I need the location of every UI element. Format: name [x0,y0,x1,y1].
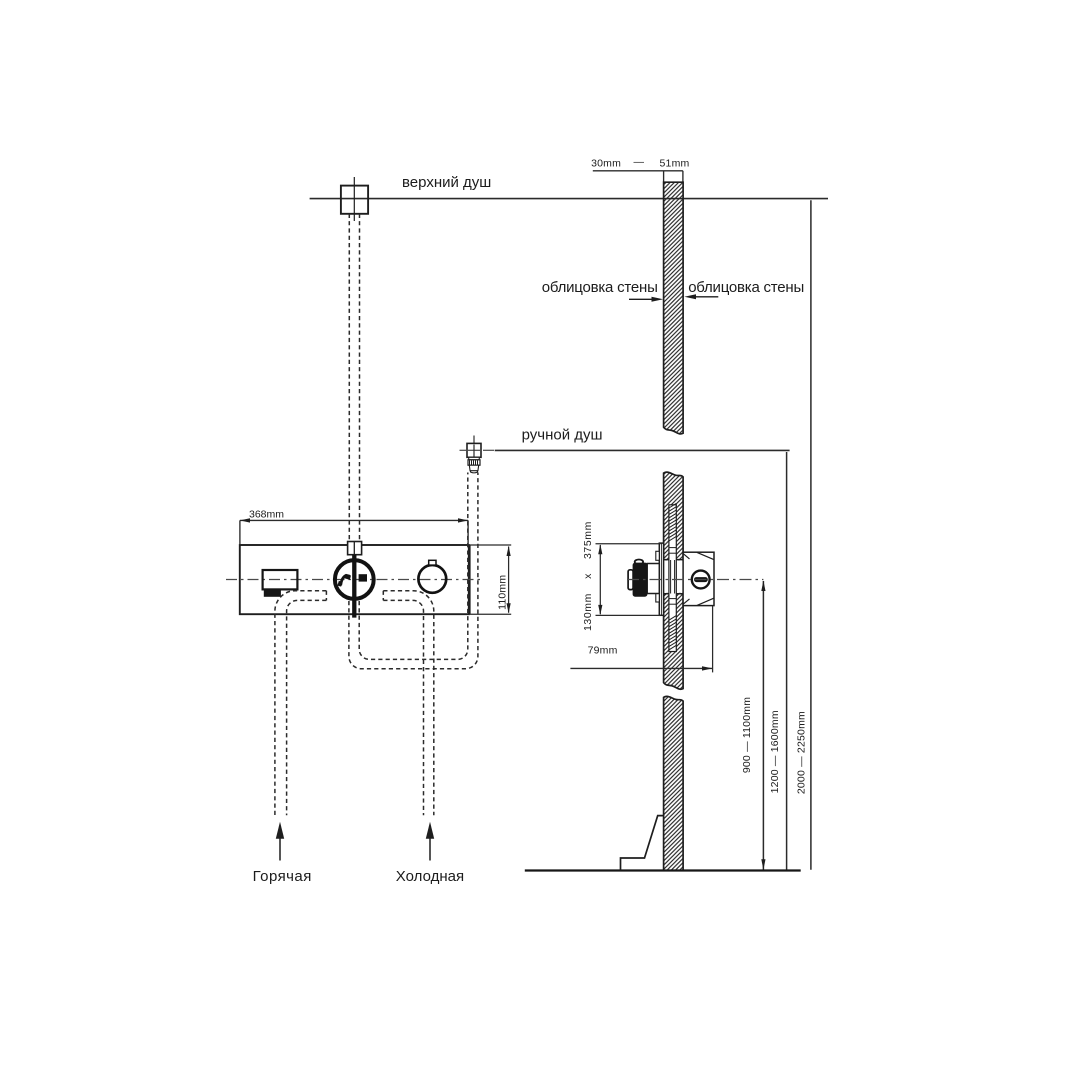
svg-text:Холодная: Холодная [396,868,464,885]
svg-text:2000 — 2250mm: 2000 — 2250mm [796,711,808,794]
svg-text:облицовка стены: облицовка стены [542,279,658,296]
svg-text:облицовка стены: облицовка стены [688,279,804,296]
svg-text:30mm: 30mm [591,157,621,169]
svg-text:51mm: 51mm [660,157,690,169]
svg-text:ручной душ: ручной душ [522,427,603,444]
svg-text:—: — [634,156,645,168]
svg-text:368mm: 368mm [249,509,284,521]
svg-text:110mm: 110mm [496,575,508,610]
svg-text:верхний душ: верхний душ [402,174,491,191]
svg-text:Горячая: Горячая [253,868,312,885]
svg-text:79mm: 79mm [588,645,618,657]
svg-text:1200 — 1600mm: 1200 — 1600mm [769,710,781,793]
svg-text:130mm x 375mm: 130mm x 375mm [582,521,594,631]
svg-text:900 — 1100mm: 900 — 1100mm [741,697,753,773]
